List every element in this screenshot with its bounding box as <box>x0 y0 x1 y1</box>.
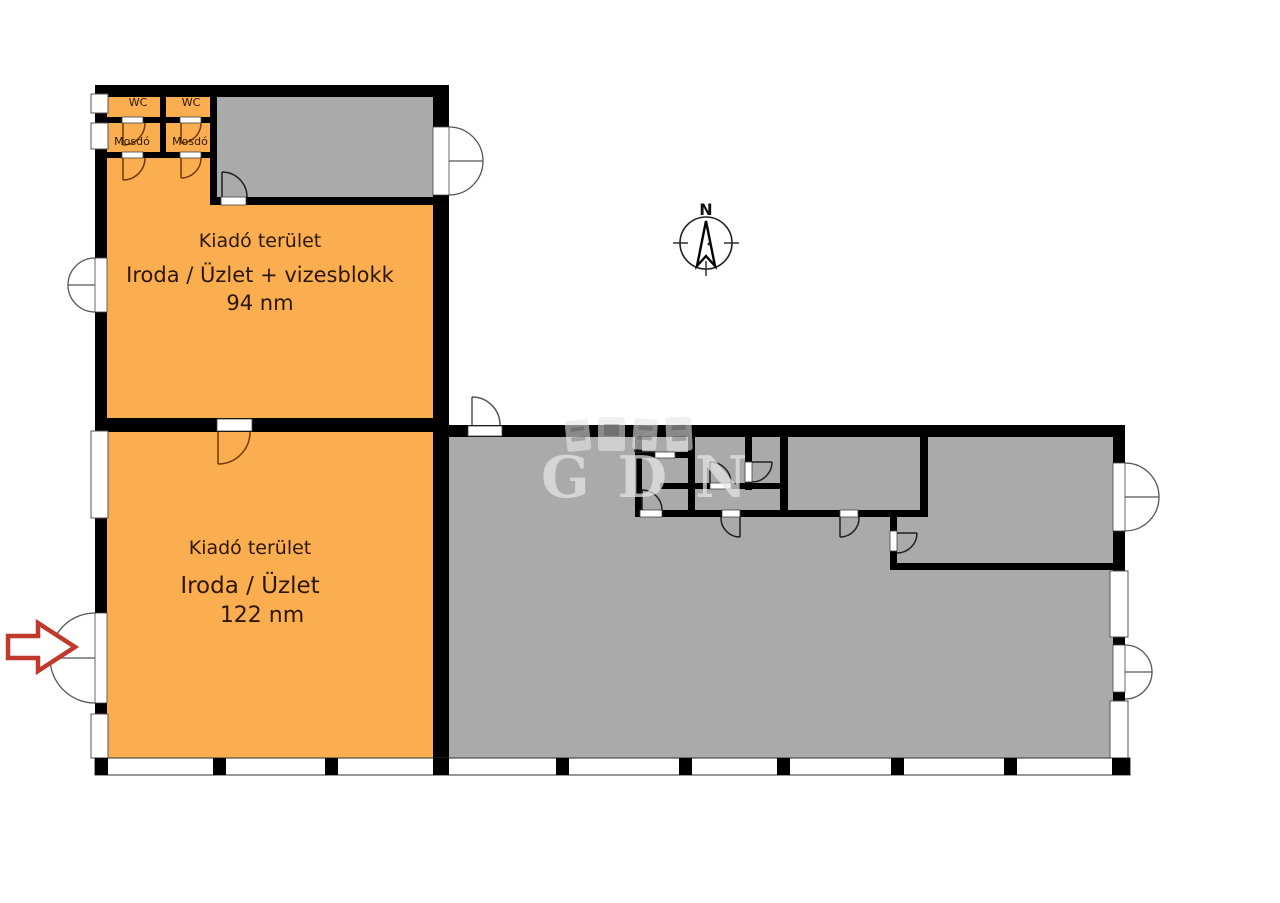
double-door-swing <box>1125 645 1152 699</box>
door-opening <box>221 197 246 205</box>
window-band <box>95 758 1130 775</box>
door-opening <box>95 258 107 312</box>
wall-segment <box>95 418 447 432</box>
window <box>91 714 108 758</box>
wall-segment <box>95 85 447 97</box>
door-opening <box>468 426 502 436</box>
door-opening <box>640 510 662 517</box>
window-mullion <box>777 758 790 775</box>
window-mullion <box>95 758 108 775</box>
floor-plan: N WC WC Mosdó Mosdó Kiadó terület Iroda … <box>0 0 1280 903</box>
window <box>1110 571 1128 637</box>
wall-segment <box>920 432 928 517</box>
door-opening <box>180 152 201 158</box>
wall-segment <box>890 563 1113 570</box>
window <box>91 431 108 518</box>
window-mullion <box>1004 758 1017 775</box>
double-door-swing <box>1125 463 1159 531</box>
wall-segment <box>635 510 928 517</box>
window-band-glass <box>95 758 1130 775</box>
unit-94-label: Kiadó terület Iroda / Üzlet + vizesblokk… <box>110 231 410 315</box>
window <box>1110 701 1128 758</box>
unit-94-area: 94 nm <box>226 291 293 315</box>
unit-94-subtitle: Iroda / Üzlet + vizesblokk <box>126 263 394 287</box>
door-opening <box>217 419 252 431</box>
window-mullion <box>891 758 904 775</box>
window-mullion <box>325 758 338 775</box>
door-swing-arc <box>472 397 500 425</box>
double-door-swing <box>449 127 483 195</box>
window-mullion <box>1112 758 1130 775</box>
window-mullion <box>433 758 449 775</box>
window <box>91 123 108 149</box>
room-label-mosdo-right: Mosdó <box>168 136 212 149</box>
door-opening <box>840 510 858 517</box>
window-mullion <box>213 758 226 775</box>
room-label-wc-left: WC <box>120 97 156 110</box>
room-label-wc-right: WC <box>173 97 209 110</box>
door-opening <box>722 510 740 517</box>
unit-94-title: Kiadó terület <box>199 231 322 253</box>
wall-segment <box>780 432 788 517</box>
watermark-text: GDN <box>541 444 775 511</box>
unit-122-area: 122 nm <box>220 603 304 628</box>
unit-122-title: Kiadó terület <box>189 538 312 560</box>
red-arrow-icon <box>8 623 75 671</box>
unit-122-subtitle: Iroda / Üzlet <box>180 573 319 599</box>
unit-122-label: Kiadó terület Iroda / Üzlet 122 nm <box>100 538 400 629</box>
door-opening <box>1113 463 1125 531</box>
window-mullion <box>679 758 692 775</box>
north-needle-icon <box>697 221 715 266</box>
north-label: N <box>699 200 712 219</box>
door-opening <box>890 531 897 551</box>
wall-segment <box>217 197 449 205</box>
double-door-swing <box>68 258 95 312</box>
door-opening <box>122 152 143 158</box>
door-opening <box>122 117 143 123</box>
room-label-mosdo-left: Mosdó <box>110 136 154 149</box>
compass-icon: N <box>673 200 739 276</box>
window <box>91 94 108 113</box>
door-opening <box>180 117 201 123</box>
door-opening <box>433 127 449 195</box>
door-opening <box>1113 645 1125 692</box>
other-area-top-room-fill <box>217 90 433 200</box>
window-mullion <box>556 758 569 775</box>
